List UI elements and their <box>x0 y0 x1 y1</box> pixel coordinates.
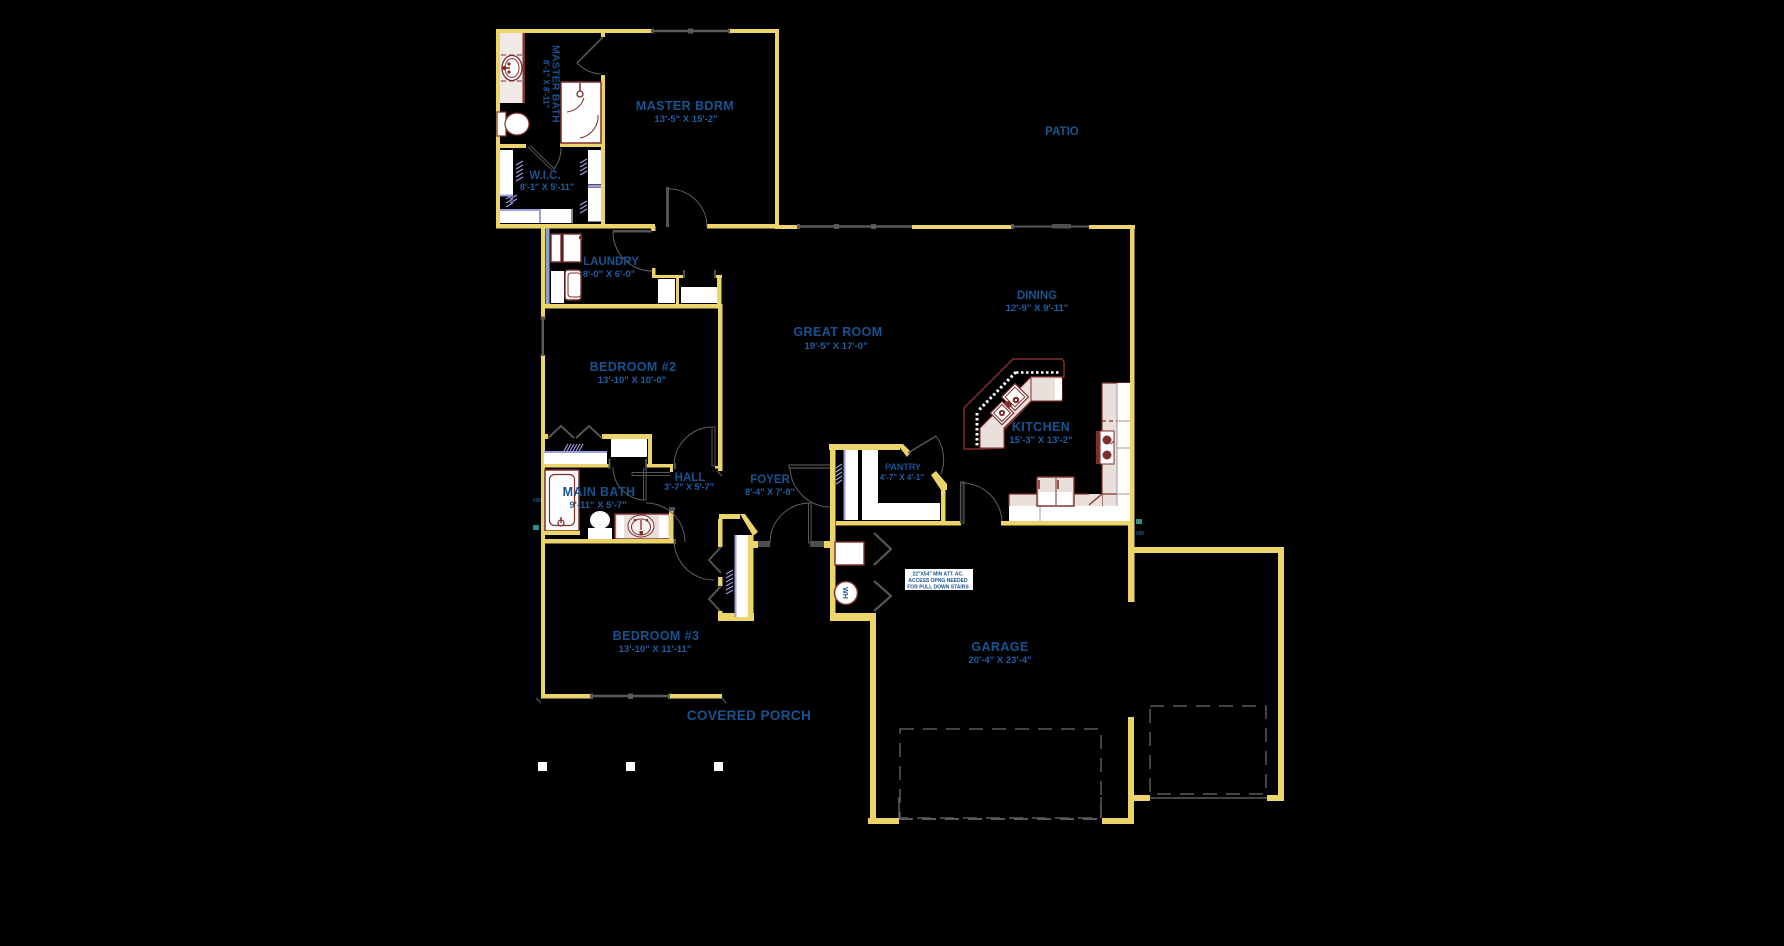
svg-text:FOYER: FOYER <box>750 474 790 486</box>
svg-text:4'-7" X 4'-1": 4'-7" X 4'-1" <box>880 473 925 482</box>
svg-text:HB: HB <box>533 498 541 504</box>
svg-text:8'-0" X 6'-0": 8'-0" X 6'-0" <box>583 269 636 280</box>
svg-text:8'-1" X 8'-11": 8'-1" X 8'-11" <box>542 60 551 109</box>
svg-text:13'-10" X 11'-11": 13'-10" X 11'-11" <box>619 644 692 655</box>
svg-text:HB: HB <box>1136 531 1144 537</box>
svg-text:ACCESS OPNG NEEDED: ACCESS OPNG NEEDED <box>908 578 968 584</box>
svg-text:8'-4" X 7'-8": 8'-4" X 7'-8" <box>745 487 795 497</box>
svg-text:PANTRY: PANTRY <box>885 462 921 472</box>
svg-text:22"X54" MIN ATT. AC.: 22"X54" MIN ATT. AC. <box>913 572 965 578</box>
svg-text:20'-4" X 23'-4": 20'-4" X 23'-4" <box>968 655 1031 666</box>
svg-text:W.I.C.: W.I.C. <box>529 170 560 182</box>
svg-text:COVERED PORCH: COVERED PORCH <box>687 708 811 723</box>
svg-text:DINING: DINING <box>1017 290 1057 302</box>
svg-text:GREAT ROOM: GREAT ROOM <box>793 325 882 339</box>
svg-text:PATIO: PATIO <box>1045 126 1078 138</box>
svg-text:9'-11" X 5'-7": 9'-11" X 5'-7" <box>569 500 626 511</box>
svg-text:BEDROOM #3: BEDROOM #3 <box>613 629 700 643</box>
svg-text:MASTER BDRM: MASTER BDRM <box>636 99 734 113</box>
svg-text:13'-5" X 15'-2": 13'-5" X 15'-2" <box>654 114 717 125</box>
svg-text:WH: WH <box>841 587 848 599</box>
svg-text:8'-1" X 5'-11": 8'-1" X 5'-11" <box>520 182 574 192</box>
svg-text:LAUNDRY: LAUNDRY <box>583 256 639 268</box>
svg-text:13'-10" X 10'-0": 13'-10" X 10'-0" <box>598 375 666 386</box>
svg-text:19'-5" X 17'-0": 19'-5" X 17'-0" <box>804 341 867 352</box>
svg-text:BEDROOM #2: BEDROOM #2 <box>590 360 677 374</box>
svg-text:MAIN BATH: MAIN BATH <box>563 485 636 499</box>
svg-text:FOR PULL DOWN STAIRS: FOR PULL DOWN STAIRS <box>907 585 969 591</box>
svg-text:15'-3" X 13'-2": 15'-3" X 13'-2" <box>1009 435 1072 446</box>
svg-text:3'-7" X 5'-7": 3'-7" X 5'-7" <box>664 482 714 492</box>
svg-text:KITCHEN: KITCHEN <box>1012 420 1070 434</box>
svg-text:12'-9" X 9'-11": 12'-9" X 9'-11" <box>1006 303 1069 314</box>
svg-text:GARAGE: GARAGE <box>971 640 1028 654</box>
